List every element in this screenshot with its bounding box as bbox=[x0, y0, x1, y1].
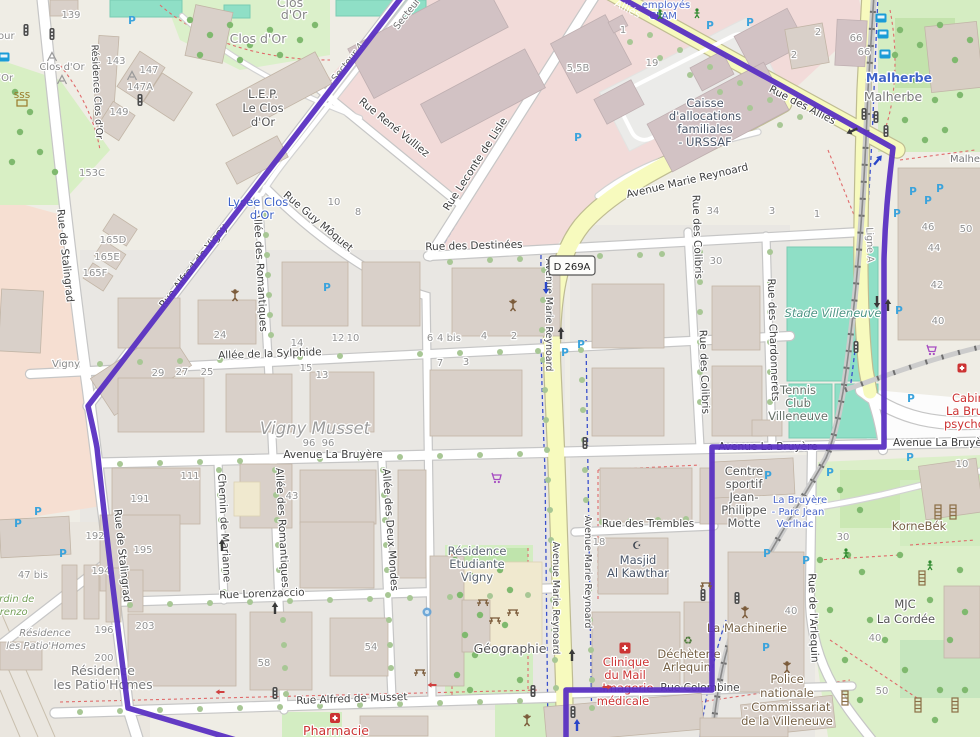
housenumber: 4 bbox=[481, 331, 487, 342]
parking-icon: P bbox=[14, 518, 22, 530]
street-tree bbox=[237, 458, 243, 464]
street-tree bbox=[137, 359, 143, 365]
map-shape bbox=[139, 99, 141, 101]
park-tree bbox=[917, 42, 923, 48]
housenumber: 195 bbox=[133, 545, 152, 556]
park-tree bbox=[932, 97, 938, 103]
park-tree bbox=[897, 552, 903, 558]
housenumber: 96 bbox=[303, 438, 316, 449]
parking-icon: P bbox=[764, 470, 772, 482]
park-tree bbox=[52, 169, 58, 175]
map-shape bbox=[572, 711, 574, 713]
place-lep-1: L.E.P. bbox=[248, 87, 278, 101]
map-shape bbox=[532, 686, 534, 688]
street-tree bbox=[580, 407, 586, 413]
parking-letter: P bbox=[826, 467, 834, 479]
hospital-cross-icon bbox=[330, 713, 340, 723]
housenumber: 147 bbox=[139, 65, 158, 76]
parking-letter: P bbox=[14, 518, 22, 530]
parking-icon: P bbox=[323, 282, 331, 294]
place-parc-2: - Parc Jean bbox=[772, 507, 825, 518]
map-shape bbox=[425, 610, 429, 614]
park-tree bbox=[902, 117, 908, 123]
park-tree bbox=[462, 632, 468, 638]
building bbox=[330, 618, 388, 676]
place-centre-sportif-3: Jean- bbox=[729, 490, 759, 504]
place-closdor: Clos d'Or bbox=[230, 31, 288, 46]
map-shape bbox=[882, 52, 889, 55]
street-tree bbox=[717, 89, 723, 95]
housenumber: 43 bbox=[286, 491, 299, 502]
park-tree bbox=[857, 697, 863, 703]
building bbox=[925, 21, 980, 92]
parking-letter: P bbox=[893, 208, 901, 220]
parking-icon: P bbox=[574, 132, 582, 144]
street-tree bbox=[535, 348, 541, 354]
building bbox=[592, 368, 664, 436]
traffic-signals-icon bbox=[531, 685, 536, 697]
building bbox=[62, 565, 77, 619]
map-shape bbox=[933, 353, 935, 355]
parking-letter: P bbox=[906, 452, 914, 464]
parking-icon: P bbox=[561, 347, 569, 359]
map-shape bbox=[572, 707, 574, 709]
housenumber: 149 bbox=[109, 107, 128, 118]
housenumber: 5,5B bbox=[567, 63, 590, 74]
parking-icon: P bbox=[128, 15, 136, 27]
housenumber: 1 bbox=[814, 209, 820, 220]
parking-icon: P bbox=[907, 393, 915, 405]
park-tree bbox=[937, 687, 943, 693]
housenumber: 15 bbox=[300, 363, 313, 374]
place-tennis-2: Club bbox=[785, 396, 811, 410]
street-tree bbox=[583, 497, 589, 503]
map-shape bbox=[498, 481, 500, 483]
parking-letter: P bbox=[895, 305, 903, 317]
map-shape bbox=[584, 445, 586, 447]
building bbox=[360, 716, 428, 736]
mosque-icon: ☪ bbox=[632, 540, 641, 552]
map-shape: ♻ bbox=[683, 635, 692, 647]
street-label-labruyere: Avenue La Bruyère bbox=[283, 449, 382, 461]
park-tree bbox=[957, 92, 963, 98]
park-tree bbox=[947, 637, 953, 643]
place-patiohomes-it-1: Résidence bbox=[19, 627, 71, 639]
street-tree bbox=[437, 700, 443, 706]
street-tree bbox=[386, 617, 392, 623]
park-tree bbox=[892, 52, 898, 58]
place-caf-4: - URSSAF bbox=[678, 135, 732, 149]
building bbox=[600, 468, 692, 522]
place-malherbe: Malherbe bbox=[864, 89, 923, 104]
map-shape bbox=[844, 548, 847, 551]
street-tree bbox=[487, 257, 493, 263]
housenumber: 192 bbox=[85, 531, 104, 542]
place-cut-our: our bbox=[0, 31, 15, 42]
street-tree bbox=[280, 617, 286, 623]
street-tree bbox=[553, 685, 559, 691]
housenumber: 44 bbox=[928, 243, 941, 254]
building bbox=[0, 289, 44, 353]
map-shape bbox=[51, 29, 53, 31]
map-shape bbox=[532, 690, 534, 692]
street-tree bbox=[597, 253, 603, 259]
housenumber: 147A bbox=[127, 82, 153, 93]
parking-letter: P bbox=[34, 506, 42, 518]
housenumber: 10 bbox=[347, 333, 360, 344]
street-tree bbox=[207, 600, 213, 606]
housenumber: 196 bbox=[94, 625, 113, 636]
park-tree bbox=[312, 22, 318, 28]
parking-letter: P bbox=[924, 195, 932, 207]
place-vigny: Vigny bbox=[52, 359, 80, 370]
map-shape bbox=[855, 349, 857, 351]
place-res-etudiante-3: Vigny bbox=[461, 570, 493, 584]
traffic-signals-icon bbox=[138, 94, 143, 106]
map-shape bbox=[25, 29, 27, 31]
building bbox=[118, 378, 204, 432]
park-tree bbox=[867, 617, 873, 623]
map-shape bbox=[875, 116, 877, 118]
street-label-reynoard-v3: Avenue Marie Reynoard bbox=[582, 516, 593, 629]
direction-arrow-icon bbox=[872, 153, 885, 166]
street-tree bbox=[544, 447, 550, 453]
street-tree bbox=[457, 350, 463, 356]
parking-letter: P bbox=[746, 17, 754, 29]
map-shape bbox=[863, 116, 865, 118]
building bbox=[198, 300, 256, 344]
building bbox=[362, 262, 420, 326]
housenumber: 14 bbox=[291, 338, 304, 349]
map-shape bbox=[885, 130, 887, 132]
street-tree bbox=[588, 647, 594, 653]
park-tree bbox=[922, 137, 928, 143]
parking-icon: P bbox=[706, 20, 714, 32]
street-tree bbox=[117, 461, 123, 467]
map-shape bbox=[1, 55, 8, 58]
housenumber: 50 bbox=[960, 224, 973, 235]
map-shape bbox=[274, 688, 276, 690]
traffic-signals-icon bbox=[583, 437, 588, 449]
traffic-signals-icon bbox=[701, 589, 706, 601]
building bbox=[430, 556, 464, 686]
park-tree bbox=[902, 667, 908, 673]
street-tree bbox=[517, 256, 523, 262]
street-tree bbox=[477, 452, 483, 458]
parking-letter: P bbox=[128, 15, 136, 27]
housenumber: 42 bbox=[931, 280, 944, 291]
park-tree bbox=[9, 159, 15, 165]
bus-stop-icon bbox=[0, 53, 10, 62]
parking-letter: P bbox=[907, 393, 915, 405]
map-shape bbox=[736, 593, 738, 595]
building bbox=[282, 262, 348, 326]
park-tree bbox=[297, 37, 303, 43]
parking-icon: P bbox=[909, 186, 917, 198]
housenumber: 54 bbox=[365, 642, 378, 653]
housenumber: 66 bbox=[850, 33, 863, 44]
place-tennis-1: Tennis bbox=[779, 383, 816, 397]
housenumber: 111 bbox=[180, 471, 199, 482]
park-tree bbox=[837, 487, 843, 493]
park-tree bbox=[227, 22, 233, 28]
housenumber: 66 bbox=[858, 47, 871, 58]
place-parc-3: Verlhac bbox=[776, 519, 813, 530]
housenumber: 1 bbox=[620, 25, 626, 36]
street-tree bbox=[388, 665, 394, 671]
playground-icon bbox=[423, 608, 432, 617]
housenumber: 27 bbox=[176, 367, 189, 378]
parking-letter: P bbox=[764, 470, 772, 482]
map-shape bbox=[875, 112, 877, 114]
parking-icon: P bbox=[895, 305, 903, 317]
housenumber: 96 bbox=[322, 438, 335, 449]
housenumber: 143 bbox=[106, 56, 125, 67]
street-tree bbox=[337, 353, 343, 359]
park-tree bbox=[882, 637, 888, 643]
street-tree bbox=[327, 597, 333, 603]
place-lycee-2: d'Or bbox=[250, 208, 275, 222]
parking-icon: P bbox=[906, 452, 914, 464]
place-closdor-top-2: d'Or bbox=[281, 7, 308, 22]
park-tree bbox=[17, 129, 23, 135]
housenumber: 4 bis bbox=[437, 333, 461, 344]
place-vigny-musset: Vigny Musset bbox=[260, 419, 371, 438]
park-tree bbox=[827, 607, 833, 613]
traffic-signals-icon bbox=[884, 125, 889, 137]
parking-letter: P bbox=[763, 548, 771, 560]
park-tree bbox=[952, 57, 958, 63]
street-tree bbox=[77, 709, 83, 715]
place-cabinet-3: psychologue bbox=[944, 417, 980, 431]
traffic-signals-icon bbox=[571, 706, 576, 718]
street-label-trembles: Rue des Trembles bbox=[602, 518, 694, 530]
place-police-4: de la Villeneuve bbox=[741, 714, 833, 728]
parking-icon: P bbox=[802, 555, 810, 567]
map-shape bbox=[863, 113, 865, 115]
place-res-etudiante-2: Etudiante bbox=[449, 557, 504, 571]
building bbox=[592, 284, 664, 348]
place-stade-villeneuve: Stade Villeneuve bbox=[785, 306, 882, 320]
bus-stop-icon bbox=[880, 50, 891, 59]
housenumber: 165D bbox=[100, 235, 127, 246]
map-viewport[interactable]: Rue de Stalingrad Rue de Stalingrad Rue … bbox=[0, 0, 980, 737]
street-tree bbox=[268, 332, 274, 338]
parking-icon: P bbox=[762, 642, 770, 654]
place-employes: employés bbox=[642, 0, 690, 11]
map-shape bbox=[572, 714, 574, 716]
map-shape: ☪ bbox=[632, 540, 641, 552]
parking-letter: P bbox=[59, 548, 67, 560]
place-tennis-3: Villeneuve bbox=[768, 409, 828, 423]
street-tree bbox=[283, 691, 289, 697]
traffic-signals-icon bbox=[735, 592, 740, 604]
housenumber: 12 bbox=[332, 333, 345, 344]
map-shape bbox=[139, 95, 141, 97]
street-tree bbox=[747, 105, 753, 111]
park-tree bbox=[467, 687, 473, 693]
map-canvas[interactable]: Rue de Stalingrad Rue de Stalingrad Rue … bbox=[0, 0, 980, 737]
place-clinique-2: du Mail bbox=[604, 668, 646, 682]
housenumber: 47 bis bbox=[18, 570, 48, 581]
place-caf-2: d'allocations bbox=[669, 109, 741, 123]
housenumber: 25 bbox=[201, 367, 214, 378]
park-tree bbox=[927, 597, 933, 603]
parking-letter: P bbox=[577, 339, 585, 351]
housenumber: 200 bbox=[94, 653, 113, 664]
park-tree bbox=[457, 592, 463, 598]
housenumber: 24 bbox=[214, 330, 227, 341]
housenumber: 194 bbox=[91, 566, 110, 577]
place-cut-dor: d'Or bbox=[0, 73, 14, 84]
place-jardin-1: Jardin de bbox=[0, 594, 34, 605]
street-label-reynoard-v2: Avenue Marie Reynoard bbox=[550, 542, 561, 655]
street-tree bbox=[282, 665, 288, 671]
place-geographie: Géographie bbox=[474, 641, 547, 656]
housenumber: 2 bbox=[511, 331, 517, 342]
park-tree bbox=[277, 52, 283, 58]
street-tree bbox=[177, 358, 183, 364]
park-tree bbox=[37, 149, 43, 155]
housenumber: 3 bbox=[769, 206, 775, 217]
parking-letter: P bbox=[802, 555, 810, 567]
place-lep-2: Le Clos bbox=[242, 101, 283, 115]
building bbox=[430, 370, 522, 436]
place-pharmacie: Pharmacie bbox=[303, 723, 369, 737]
place-jardin-2: Lorenzo bbox=[0, 607, 28, 618]
building bbox=[919, 458, 980, 520]
street-label-ligne-a: Ligne A bbox=[863, 227, 875, 263]
map-shape bbox=[584, 442, 586, 444]
housenumber: 203 bbox=[135, 621, 154, 632]
street-label-destinees: Rue des Destinées bbox=[425, 239, 523, 254]
housenumber: 50 bbox=[876, 686, 889, 697]
housenumber: 40 bbox=[932, 316, 945, 327]
street-tree bbox=[517, 698, 523, 704]
street-tree bbox=[237, 705, 243, 711]
place-mjc-2: La Cordée bbox=[877, 612, 935, 626]
street-tree bbox=[487, 593, 493, 599]
place-caf-1: Caisse bbox=[686, 96, 723, 110]
place-patiohomes-2: les Patio'Homes bbox=[53, 677, 152, 692]
street-tree bbox=[127, 602, 133, 608]
map-shape bbox=[855, 346, 857, 348]
place-police-1: Police bbox=[770, 672, 803, 686]
map-shape bbox=[532, 693, 534, 695]
street-tree bbox=[157, 707, 163, 713]
housenumber: 2 bbox=[815, 27, 821, 38]
street-tree bbox=[97, 361, 103, 367]
place-lep-3: d'Or bbox=[251, 115, 276, 129]
street-label-moquet: Rue Guy Môquet bbox=[281, 189, 355, 254]
bus-stop-icon bbox=[876, 14, 887, 23]
street-tree bbox=[387, 642, 393, 648]
street-tree bbox=[385, 592, 391, 598]
map-shape bbox=[702, 597, 704, 599]
housenumber: 153C bbox=[79, 168, 105, 179]
map-shape bbox=[878, 16, 885, 19]
housenumber: 34 bbox=[707, 206, 720, 217]
place-decheterie-2: Arlequin bbox=[663, 660, 711, 674]
road-ref-shield: D 269A bbox=[549, 256, 595, 275]
parking-icon: P bbox=[763, 548, 771, 560]
housenumber: 10 bbox=[956, 459, 969, 470]
traffic-signals-icon bbox=[24, 24, 29, 36]
place-masjid-2: Al Kawthar bbox=[607, 566, 669, 580]
map-shape bbox=[927, 345, 936, 352]
park-tree bbox=[857, 507, 863, 513]
street-tree bbox=[543, 417, 549, 423]
housenumber: 29 bbox=[152, 368, 165, 379]
place-patiohomes-it-2: les Patio'Homes bbox=[6, 641, 86, 652]
street-tree bbox=[367, 596, 373, 602]
park-tree bbox=[967, 37, 973, 43]
park-tree bbox=[962, 609, 968, 615]
building bbox=[300, 522, 374, 588]
place-lycee-1: Lycée Clos bbox=[228, 195, 289, 209]
park-tree bbox=[817, 557, 823, 563]
place-caf-3: familiales bbox=[677, 122, 732, 136]
housenumber: 30 bbox=[837, 532, 850, 543]
map-shape bbox=[584, 438, 586, 440]
building bbox=[785, 23, 829, 69]
map-shape bbox=[736, 600, 738, 602]
map-shape bbox=[51, 36, 53, 38]
park-tree bbox=[197, 52, 203, 58]
housenumber: 6 bbox=[427, 333, 433, 344]
park-tree bbox=[937, 22, 943, 28]
map-shape bbox=[702, 594, 704, 596]
street-tree bbox=[157, 460, 163, 466]
housenumber: 191 bbox=[130, 494, 149, 505]
map-shape bbox=[872, 153, 885, 166]
map-shape bbox=[736, 597, 738, 599]
place-clinique-4: médicale bbox=[597, 694, 649, 708]
housenumber: 2 bbox=[791, 50, 797, 61]
street-tree bbox=[197, 706, 203, 712]
park-tree bbox=[454, 672, 460, 678]
housenumber: 7 bbox=[437, 358, 443, 369]
street-tree bbox=[687, 72, 693, 78]
housenumber: 40 bbox=[785, 606, 798, 617]
street-tree bbox=[437, 453, 443, 459]
street-tree bbox=[589, 705, 595, 711]
housenumber: 58 bbox=[258, 658, 271, 669]
parking-icon: P bbox=[59, 548, 67, 560]
parking-icon: P bbox=[577, 339, 585, 351]
supermarket-cart-icon bbox=[927, 345, 936, 355]
place-cabinet-2: La Bruyère bbox=[946, 404, 980, 418]
parking-letter: P bbox=[706, 20, 714, 32]
street-tree bbox=[707, 64, 713, 70]
place-mjc-1: MJC bbox=[894, 597, 915, 611]
street-tree bbox=[407, 595, 413, 601]
park-tree bbox=[897, 27, 903, 33]
place-malherbe-cut: Malherbe bbox=[950, 154, 980, 165]
place-centre-sportif-2: sportif bbox=[726, 477, 764, 491]
map-shape bbox=[863, 109, 865, 111]
street-tree bbox=[197, 459, 203, 465]
park-tree bbox=[957, 567, 963, 573]
park-tree bbox=[517, 677, 523, 683]
street-tree bbox=[216, 467, 222, 473]
place-cabinet-1: Cabinet bbox=[952, 391, 980, 405]
map-shape bbox=[25, 25, 27, 27]
street-tree bbox=[525, 592, 531, 598]
building bbox=[712, 286, 760, 350]
parking-icon: P bbox=[936, 183, 944, 195]
map-shape bbox=[139, 102, 141, 104]
